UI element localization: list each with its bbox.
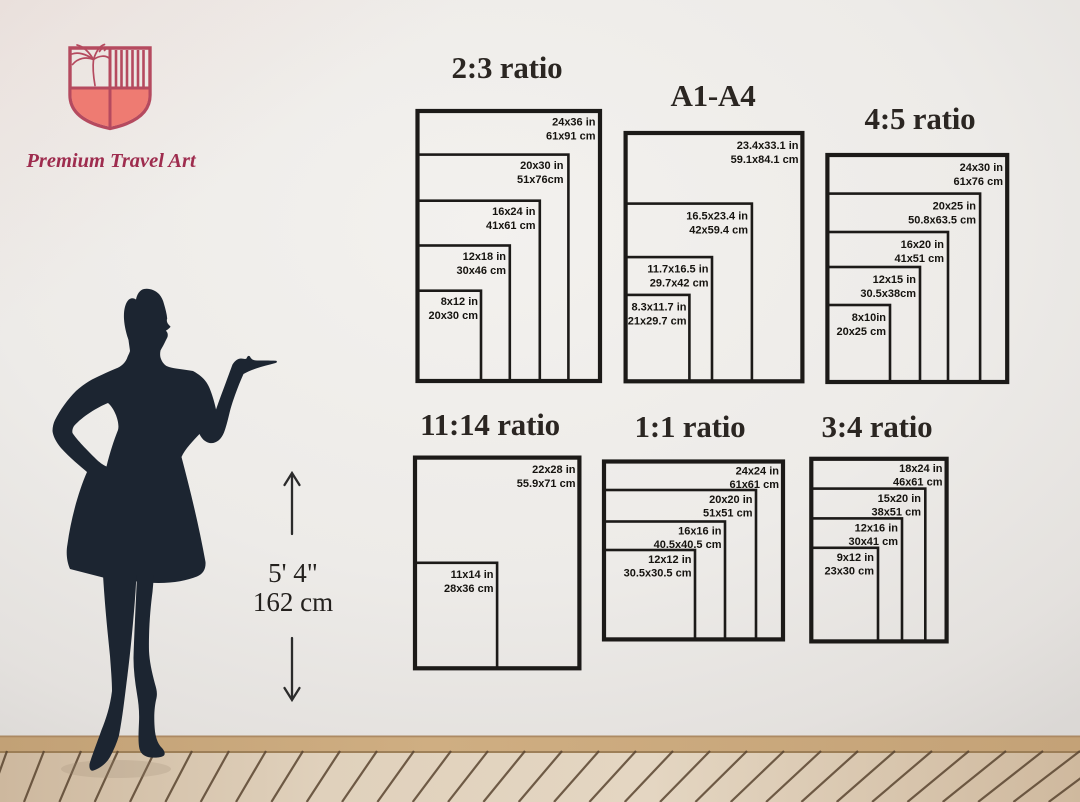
svg-text:20x20 in: 20x20 in	[709, 494, 753, 506]
svg-text:12x12 in: 12x12 in	[648, 554, 692, 566]
svg-text:30x41 cm: 30x41 cm	[848, 536, 898, 548]
svg-text:46x61 cm: 46x61 cm	[893, 477, 943, 489]
svg-text:11x14 in: 11x14 in	[451, 569, 494, 581]
svg-text:50.8x63.5 cm: 50.8x63.5 cm	[908, 215, 976, 227]
svg-text:16x20 in: 16x20 in	[901, 239, 945, 251]
svg-text:3:4 ratio: 3:4 ratio	[822, 409, 933, 444]
svg-text:11:14 ratio: 11:14 ratio	[420, 407, 560, 442]
svg-text:8x10in: 8x10in	[852, 312, 887, 324]
svg-text:40.5x40.5 cm: 40.5x40.5 cm	[654, 539, 722, 551]
svg-text:23x30 cm: 23x30 cm	[824, 566, 874, 578]
svg-text:24x30 in: 24x30 in	[960, 162, 1004, 174]
svg-text:4:5 ratio: 4:5 ratio	[865, 101, 976, 136]
svg-text:8x12 in: 8x12 in	[441, 296, 479, 308]
svg-text:55.9x71 cm: 55.9x71 cm	[517, 478, 576, 490]
svg-text:38x51 cm: 38x51 cm	[871, 506, 921, 518]
svg-text:24x24 in: 24x24 in	[736, 466, 780, 478]
svg-text:11.7x16.5 in: 11.7x16.5 in	[647, 264, 708, 276]
svg-text:24x36 in: 24x36 in	[552, 117, 596, 129]
svg-text:1:1 ratio: 1:1 ratio	[635, 409, 746, 444]
svg-text:61x61 cm: 61x61 cm	[729, 479, 779, 491]
svg-text:16x24 in: 16x24 in	[492, 206, 536, 218]
svg-text:61x76 cm: 61x76 cm	[953, 176, 1003, 188]
svg-text:20x30 cm: 20x30 cm	[428, 310, 478, 322]
svg-text:5' 4": 5' 4"	[268, 558, 318, 588]
svg-text:16x16 in: 16x16 in	[678, 526, 722, 538]
svg-text:42x59.4 cm: 42x59.4 cm	[689, 225, 748, 237]
svg-text:A1-A4: A1-A4	[670, 78, 755, 113]
svg-text:51x76cm: 51x76cm	[517, 174, 564, 186]
svg-text:61x91 cm: 61x91 cm	[546, 131, 596, 143]
svg-text:41x61 cm: 41x61 cm	[486, 220, 536, 232]
svg-text:16.5x23.4 in: 16.5x23.4 in	[686, 211, 748, 223]
svg-text:23.4x33.1 in: 23.4x33.1 in	[737, 140, 799, 152]
svg-text:12x16 in: 12x16 in	[855, 523, 899, 535]
svg-text:2:3 ratio: 2:3 ratio	[452, 50, 563, 85]
svg-text:18x24 in: 18x24 in	[899, 463, 943, 475]
svg-text:28x36 cm: 28x36 cm	[444, 583, 494, 595]
svg-text:12x18 in: 12x18 in	[463, 251, 507, 263]
svg-text:29.7x42 cm: 29.7x42 cm	[650, 278, 709, 290]
svg-text:21x29.7 cm: 21x29.7 cm	[628, 316, 687, 328]
svg-text:30.5x30.5 cm: 30.5x30.5 cm	[624, 568, 692, 580]
svg-text:51x51 cm: 51x51 cm	[703, 508, 753, 520]
svg-text:30x46 cm: 30x46 cm	[456, 265, 506, 277]
svg-text:9x12 in: 9x12 in	[837, 552, 875, 564]
svg-text:162 cm: 162 cm	[253, 587, 333, 617]
svg-text:15x20 in: 15x20 in	[878, 493, 922, 505]
svg-text:20x30 in: 20x30 in	[520, 160, 564, 172]
svg-text:30.5x38cm: 30.5x38cm	[860, 288, 916, 300]
svg-text:59.1x84.1 cm: 59.1x84.1 cm	[731, 154, 799, 166]
svg-text:20x25 in: 20x25 in	[933, 201, 977, 213]
svg-text:20x25 cm: 20x25 cm	[836, 326, 886, 338]
svg-text:Premium Travel Art: Premium Travel Art	[25, 150, 197, 172]
svg-text:8.3x11.7 in: 8.3x11.7 in	[631, 302, 686, 314]
svg-text:22x28 in: 22x28 in	[532, 464, 576, 476]
svg-text:41x51 cm: 41x51 cm	[894, 253, 944, 265]
svg-text:12x15 in: 12x15 in	[873, 274, 917, 286]
